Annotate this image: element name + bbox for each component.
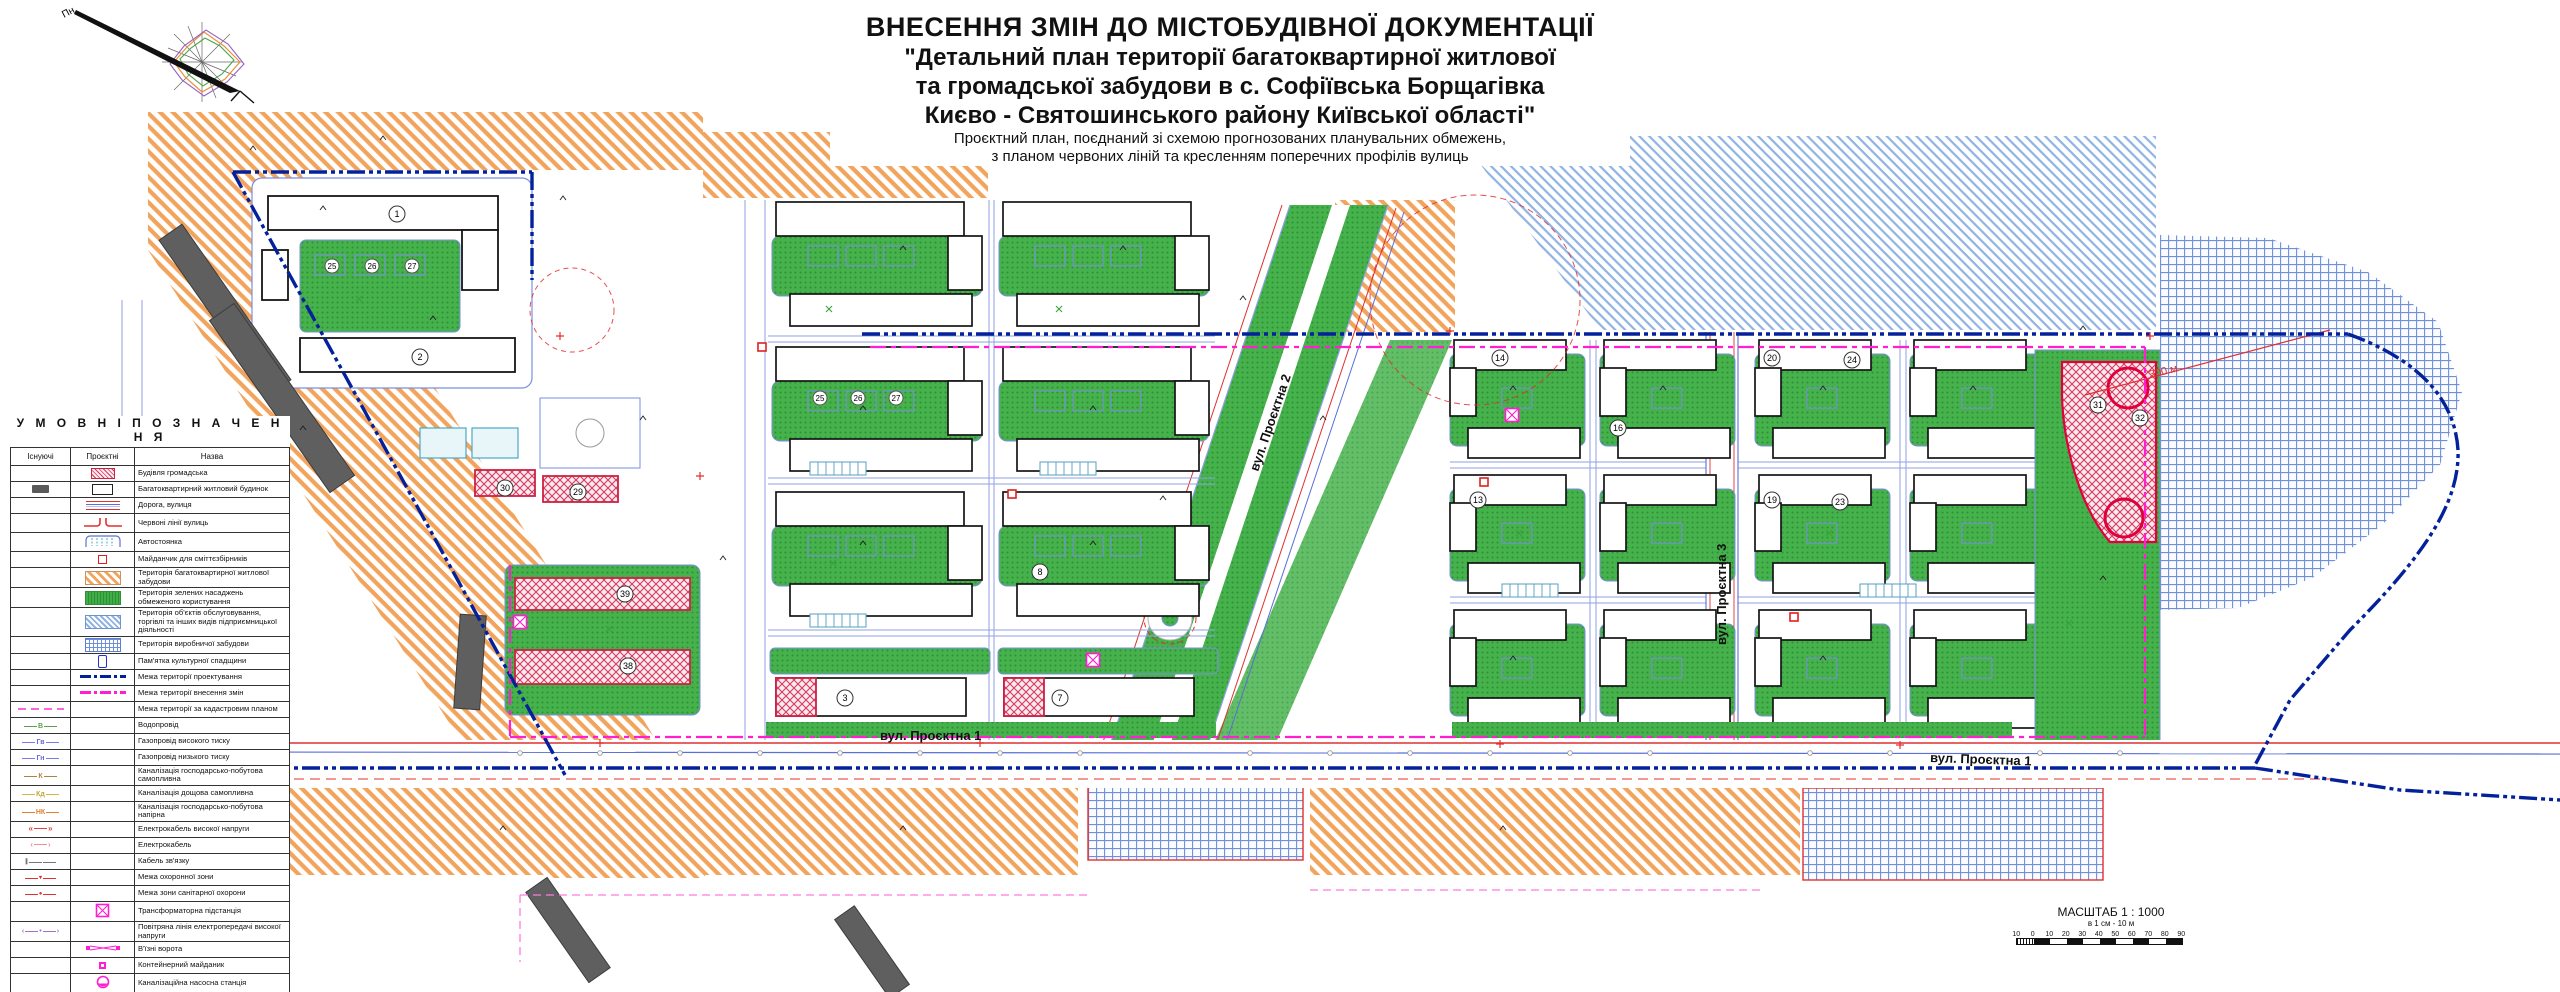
svg-text:29: 29	[573, 487, 583, 497]
gas-high-line-icon: Гв	[15, 739, 67, 746]
title-line-2: "Детальний план території багатоквартирн…	[830, 43, 1630, 72]
apartment-building-icon	[92, 484, 113, 495]
title-line-3: та громадської забудови в с. Софіївська …	[830, 72, 1630, 101]
legend-col-name: Назва	[135, 448, 290, 466]
scale-ticks: 100102030405060708090	[2008, 931, 2206, 938]
legend-row: Трансформаторна підстанція	[11, 901, 290, 922]
svg-text:7: 7	[1057, 693, 1062, 703]
legend-row: ГвГазопровід високого тиску	[11, 733, 290, 749]
legend-row: Територія багатоквартирної житлової забу…	[11, 568, 290, 588]
svg-text:39: 39	[620, 589, 630, 599]
legend-row: Будівля громадська	[11, 466, 290, 482]
masterplan-sheet: вул. Проєктна 1 вул. Проєктна 1 вул. Про…	[0, 0, 2560, 992]
svg-text:26: 26	[368, 262, 377, 271]
main-road	[140, 740, 2560, 788]
scale-subtitle: в 1 см - 10 м	[2016, 919, 2206, 929]
green-territory-swatch	[85, 591, 121, 605]
legend-row: ●Межа зони санітарної охорони	[11, 885, 290, 901]
waste-pad-icon	[98, 555, 107, 564]
legend-row: ▾Межа охоронної зони	[11, 869, 290, 885]
cable-high-icon: «»	[15, 825, 67, 832]
residential-territory-swatch	[85, 571, 121, 585]
parking-icon	[84, 534, 122, 548]
svg-text:30: 30	[500, 483, 510, 493]
svg-text:14: 14	[1495, 353, 1505, 363]
svg-text:27: 27	[408, 262, 417, 271]
legend-header: У М О В Н І П О З Н А Ч Е Н Н Я	[10, 416, 290, 444]
project-boundary-icon	[80, 675, 126, 678]
gas-low-line-icon: Гн	[15, 755, 67, 762]
legend-row: Багатоквартирний житловий будинок	[11, 482, 290, 498]
svg-text:24: 24	[1847, 355, 1857, 365]
legend-row: «»Електрокабель високої напруги	[11, 821, 290, 837]
overhead-line-icon: ‹•›	[15, 928, 67, 935]
legend-row: Межа території за кадастровим планом	[11, 701, 290, 717]
svg-text:8: 8	[1037, 567, 1042, 577]
legend-col-existing: Існуючі	[11, 448, 71, 466]
legend-row: ВВодопровід	[11, 717, 290, 733]
svg-text:23: 23	[1835, 497, 1845, 507]
public-block-38-39	[505, 565, 700, 715]
street-label-projektna3: вул. Проєктна 3	[1714, 544, 1729, 645]
legend-row: Територія об'єктів обслуговування, торгі…	[11, 608, 290, 637]
legend-row: Каналізаційна насосна станція	[11, 974, 290, 992]
legend-row: КдКаналізація дощова самопливна	[11, 785, 290, 801]
svg-text:26: 26	[854, 394, 863, 403]
storm-sewer-line-icon: Кд	[15, 791, 67, 798]
scale-bar-strip	[2016, 938, 2183, 945]
legend-header-row: Існуючі Проєктні Назва	[11, 448, 290, 466]
svg-text:3: 3	[842, 693, 847, 703]
north-arrow	[74, 10, 240, 93]
protection-zone-icon: ▾	[15, 875, 67, 882]
legend-row: Пам'ятка культурної спадщини	[11, 653, 290, 669]
svg-text:31: 31	[2093, 400, 2103, 410]
legend-col-projected: Проєктні	[71, 448, 135, 466]
industrial-territory-swatch	[85, 638, 121, 652]
sewer-gravity-line-icon: К	[15, 773, 67, 780]
scale-bar: МАСШТАБ 1 : 1000 в 1 см - 10 м 100102030…	[2016, 906, 2206, 945]
red-lines-icon	[82, 515, 124, 528]
title-line-6: з планом червоних ліній та кресленням по…	[830, 148, 1630, 166]
legend-table: Існуючі Проєктні Назва Будівля громадськ…	[10, 447, 290, 992]
svg-text:38: 38	[623, 661, 633, 671]
svg-text:2: 2	[417, 352, 422, 362]
legend-row: ∥Кабель зв'язку	[11, 853, 290, 869]
legend-row: Майданчик для сміттєзбірників	[11, 552, 290, 568]
comm-cable-icon: ∥	[15, 859, 67, 866]
public-building-icon	[91, 468, 115, 479]
legend-row: Автостоянка	[11, 532, 290, 552]
svg-text:13: 13	[1473, 495, 1483, 505]
transformer-icon	[95, 903, 110, 918]
cable-icon: ‹›	[15, 841, 67, 848]
cadastre-boundary	[520, 890, 1760, 962]
cadastre-boundary-icon	[18, 708, 64, 710]
title-line-1: ВНЕСЕННЯ ЗМІН ДО МІСТОБУДІВНОЇ ДОКУМЕНТА…	[830, 12, 1630, 43]
legend-row: Територія зелених насаджень обмеженого к…	[11, 588, 290, 608]
svg-text:1: 1	[394, 209, 399, 219]
legend-row: ККаналізація господарсько-побутова самоп…	[11, 765, 290, 785]
water-line-icon: В	[15, 723, 67, 730]
svg-text:32: 32	[2135, 413, 2145, 423]
title-block: ВНЕСЕННЯ ЗМІН ДО МІСТОБУДІВНОЇ ДОКУМЕНТА…	[830, 12, 1630, 166]
legend-row: НККаналізація господарсько-побутова напі…	[11, 801, 290, 821]
compass-rose: Пн	[52, 2, 262, 112]
svg-text:27: 27	[892, 394, 901, 403]
legend-row: Межа території внесення змін	[11, 685, 290, 701]
scale-title: МАСШТАБ 1 : 1000	[2016, 906, 2206, 919]
legend-row: Межа території проектування	[11, 669, 290, 685]
sewage-pump-icon	[96, 975, 110, 989]
legend-row: Контейнерний майданик	[11, 958, 290, 974]
svg-text:25: 25	[328, 262, 337, 271]
container-pad-icon	[99, 962, 106, 969]
sanitary-zone-icon: ●	[15, 891, 67, 898]
street-label-projektna1-a: вул. Проєктна 1	[880, 728, 981, 743]
legend-row: ‹•›Повітряна лінія електропередачі висок…	[11, 922, 290, 942]
legend-row: Територія виробничої забудови	[11, 636, 290, 653]
svg-text:20: 20	[1767, 353, 1777, 363]
legend-row: Червоні лінії вулиць	[11, 514, 290, 533]
gates-icon	[85, 943, 121, 953]
legend-row: Дорога, вулиця	[11, 498, 290, 514]
svg-text:19: 19	[1767, 495, 1777, 505]
legend-row: В'їзні ворота	[11, 942, 290, 958]
heritage-icon	[98, 655, 107, 668]
legend: У М О В Н І П О З Н А Ч Е Н Н Я Існуючі …	[10, 416, 290, 992]
road-icon	[86, 500, 120, 512]
existing-building-icon	[32, 485, 49, 493]
svg-text:25: 25	[816, 394, 825, 403]
changes-boundary-icon	[80, 691, 126, 694]
service-territory-swatch	[85, 615, 121, 629]
north-label: Пн	[60, 5, 76, 21]
title-line-5: Проєктний план, поєднаний зі схемою прог…	[830, 130, 1630, 148]
legend-row: ГнГазопровід низького тиску	[11, 749, 290, 765]
sewer-pressure-line-icon: НК	[15, 809, 67, 816]
title-line-4: Києво - Святошинського району Київської …	[830, 101, 1630, 130]
legend-row: ‹›Електрокабель	[11, 837, 290, 853]
svg-text:16: 16	[1613, 423, 1623, 433]
